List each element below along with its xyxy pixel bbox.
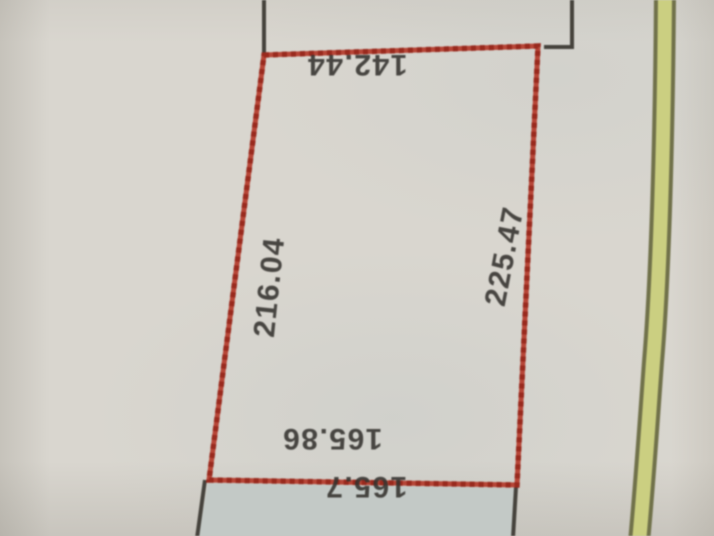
measurement-left-boundary: 216.04 — [248, 235, 291, 339]
measurement-bottom-boundary: 165.7 — [325, 470, 408, 503]
road-highlight-line — [639, 0, 665, 536]
plat-drawing: 142.44 216.04 225.47 165.86 165.7 — [0, 0, 714, 536]
measurement-right-boundary: 225.47 — [479, 204, 531, 309]
measurement-top-boundary: 142.44 — [307, 48, 408, 81]
plat-photo: 142.44 216.04 225.47 165.86 165.7 — [0, 0, 714, 536]
adjacent-boundary-line-top-right — [544, 0, 572, 47]
measurement-bottom-inner-boundary: 165.86 — [282, 422, 383, 455]
